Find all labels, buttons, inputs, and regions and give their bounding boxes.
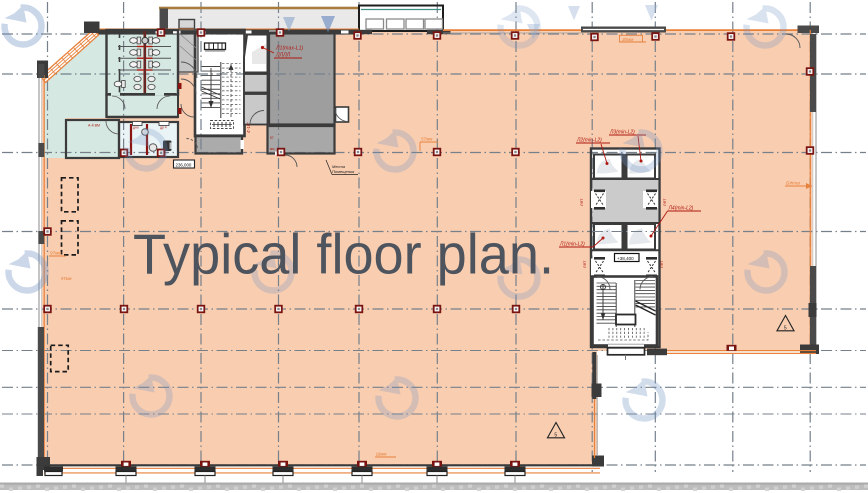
- svg-text:ЛФТ: ЛФТ: [580, 198, 584, 206]
- svg-text:30мм: 30мм: [622, 37, 634, 42]
- svg-text:ЛФТ: ЛФТ: [660, 260, 664, 268]
- svg-text:57: 57: [270, 136, 274, 140]
- svg-text:дно: дно: [133, 126, 139, 130]
- svg-text:Помещения: Помещения: [332, 169, 355, 174]
- svg-text:А-й ВМ: А-й ВМ: [88, 124, 100, 128]
- svg-text:Шмм: Шмм: [376, 452, 387, 457]
- svg-text:9Тмм: 9Тмм: [61, 276, 72, 281]
- svg-text:др 4: др 4: [160, 126, 167, 130]
- svg-text:97мм: 97мм: [50, 251, 62, 256]
- svg-text:5: 5: [784, 326, 787, 332]
- svg-text:5: 5: [554, 433, 557, 439]
- svg-text:57мм: 57мм: [421, 137, 433, 142]
- svg-text:4'-10": 4'-10": [246, 122, 251, 133]
- svg-text:Л1(max-L1): Л1(max-L1): [275, 46, 303, 52]
- svg-text:ЛФТ: ЛФТ: [583, 260, 587, 268]
- svg-text:мм: мм: [270, 147, 274, 151]
- svg-text:ЛФТ: ЛФТ: [663, 198, 667, 206]
- svg-text:236,000: 236,000: [176, 162, 192, 167]
- svg-text:+38,400: +38,400: [617, 256, 634, 261]
- svg-text:Typical floor plan.: Typical floor plan.: [133, 223, 554, 287]
